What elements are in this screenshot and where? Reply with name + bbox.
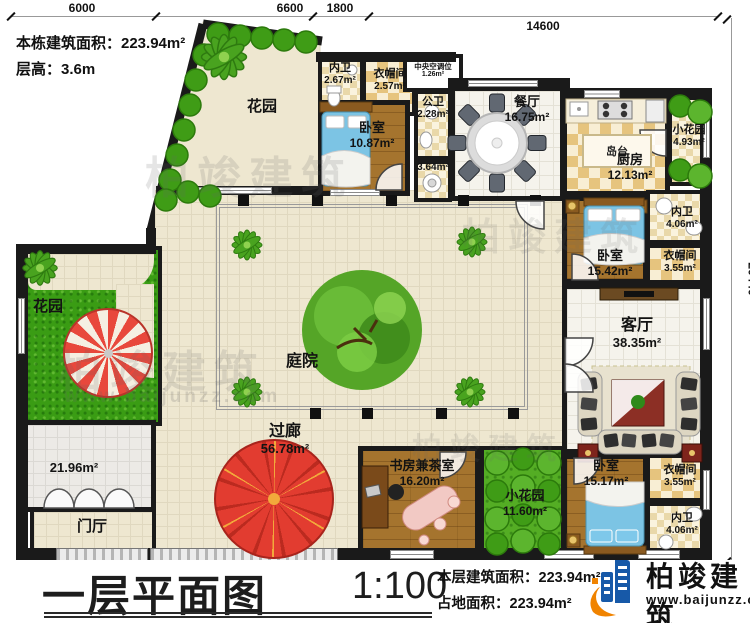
wall-step	[560, 78, 570, 100]
column	[436, 408, 447, 419]
watermark-url: www.baijunzz.com	[64, 386, 280, 408]
watermark-text: 柏竣建筑	[145, 142, 353, 206]
title-block: 一层平面图 1:100 本层建筑面积：223.94m² 占地面积：223.94m…	[0, 560, 750, 623]
red-umbrella	[214, 439, 334, 559]
wall-connector	[146, 228, 156, 252]
column	[530, 195, 541, 206]
dim-1800: 1800	[327, 1, 354, 15]
label-garden-left: 花园	[33, 298, 63, 316]
brand-name: 柏竣建筑	[646, 555, 750, 623]
window-living	[703, 298, 710, 350]
dim-14600: 14600	[526, 19, 559, 33]
label-neiwei-right: 内卫4.06m²	[666, 206, 698, 231]
dim-line-top	[10, 16, 718, 17]
label-courtyard: 庭院	[286, 352, 318, 371]
label-neiwei-top: 内卫2.67m²	[324, 62, 356, 87]
column	[458, 195, 469, 206]
label-hall-util: 3.64m²	[417, 162, 449, 174]
label-yimaojian-right: 衣帽间3.55m²	[664, 250, 697, 275]
window-dining	[468, 80, 538, 87]
watermark-text: 柏竣建筑	[462, 206, 646, 261]
floor-height-text: 层高：3.6m	[16, 58, 95, 79]
label-living: 客厅38.35m²	[613, 316, 661, 351]
label-yimaojian-bottom: 衣帽间3.55m²	[664, 464, 697, 489]
label-bedroom-bottom: 卧室15.17m²	[584, 458, 629, 488]
label-foyer: 门厅	[77, 518, 107, 536]
dim-6600: 6600	[277, 1, 304, 15]
wall-kitchen-top	[560, 88, 712, 99]
wall-left	[16, 244, 28, 560]
label-kitchen: 厨房12.13m²	[608, 152, 653, 182]
brand-logo-icon	[584, 556, 642, 618]
wall-top-a	[316, 52, 456, 62]
label-yimaojian-top: 衣帽间2.57m²	[374, 68, 407, 93]
floor-plan: 岛台 花园 内卫2.67m² 衣帽间2.57m² 中央空调位1.26m² 卧室1…	[0, 0, 750, 623]
label-gongwei: 公卫2.28m²	[417, 96, 449, 121]
column	[310, 408, 321, 419]
label-corridor: 过廊56.78m²	[261, 422, 309, 457]
dim-20440: 20440	[746, 262, 750, 295]
floor-area-text: 本层建筑面积：223.94m²	[437, 566, 601, 587]
window-bottom-3	[390, 550, 434, 559]
window-left	[18, 298, 25, 354]
plan-scale: 1:100	[352, 565, 447, 608]
column	[362, 408, 373, 419]
window-kitchen-1	[584, 90, 620, 98]
watermark-text: 柏竣建筑	[412, 424, 564, 468]
column	[386, 195, 397, 206]
label-garden-bottom: 小花园11.60m²	[503, 488, 547, 518]
building-area-text: 本栋建筑面积：223.94m²	[16, 32, 185, 53]
label-hall-left: 21.96m²	[50, 460, 98, 476]
label-dining: 餐厅16.75m²	[505, 94, 550, 124]
window-bedroom-br	[703, 470, 710, 510]
dim-6000: 6000	[69, 1, 96, 15]
title-underline	[44, 612, 432, 618]
land-area-text: 占地面积：223.94m²	[437, 592, 572, 613]
dim-line-right	[731, 18, 732, 562]
room-living	[562, 284, 710, 454]
label-garden-top: 花园	[247, 98, 277, 116]
label-bedroom-top: 卧室10.87m²	[350, 120, 395, 150]
brand-url: www.baijunzz.com	[646, 592, 750, 607]
label-neiwei-bottom: 内卫4.06m²	[666, 512, 698, 537]
label-hvac: 中央空调位1.26m²	[414, 62, 452, 79]
label-garden-tr: 小花园4.93m²	[673, 124, 706, 149]
column	[508, 408, 519, 419]
wall-garden-left-top	[16, 244, 156, 254]
